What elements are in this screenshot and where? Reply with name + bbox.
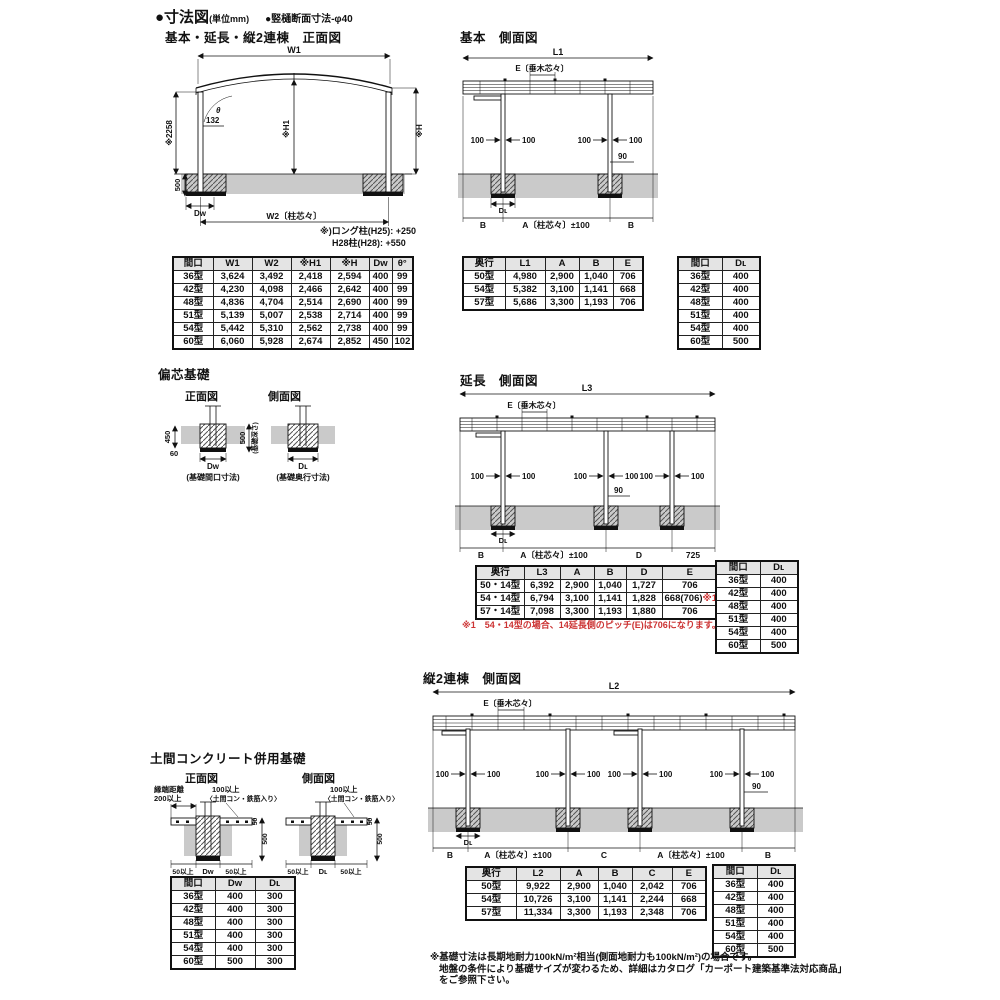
table-cell: 36型 [173,271,213,284]
dim-l3: L3 [460,383,715,394]
table-cell: 3,492 [252,271,291,284]
table-cell: 6,392 [524,580,560,593]
table-cell: 42型 [678,284,722,297]
table-row: 36型400 [713,879,795,892]
p100-label: 100 [522,136,536,145]
a-label: A〔柱芯々〕±100 [657,850,725,860]
dim-l1: L1 [463,47,653,58]
p100-label: 100 [536,770,550,779]
column-header: D [626,566,662,580]
long-column-note-line2: H28柱(H28): +550 [320,238,416,250]
column-header: L2 [516,867,560,881]
table-cell: 3,300 [560,907,598,921]
table-cell: 706 [662,606,718,620]
table-header-row: 間口Dʟ [678,257,760,271]
table-cell: 400 [760,575,798,588]
dimension-drawing-page: ●寸法図(単位mm)●竪樋断面寸法-φ40 基本・延長・縦2連棟 正面図 基本 … [0,0,1000,1000]
table-cell: 36型 [171,891,215,904]
table-cell: 51型 [713,918,757,931]
table-row: 51型5,1395,0072,5382,71440099 [173,310,413,323]
table-cell: 706 [613,271,643,284]
table-row: 42型400 [678,284,760,297]
dim-h: ※H [392,88,424,174]
table-cell: 36型 [713,879,757,892]
dl-label: Dʟ [298,462,308,471]
v725-label: 725 [686,550,700,560]
column-header: Dᴡ [369,257,392,271]
table-cell: 60型 [716,640,760,654]
table-cell: 2,594 [330,271,369,284]
table-cell: 2,642 [330,284,369,297]
dim-w2: W2〔柱芯々〕 [201,197,389,226]
table-header-row: 奥行L1ABE [463,257,643,271]
table-cell: 668(706)※1 [662,593,718,606]
column-header: ※H1 [291,257,330,271]
table-cell: 5,686 [505,297,545,311]
column-header: θ° [392,257,413,271]
min50-label: 50以上 [225,867,246,876]
table-cell: 400 [215,917,255,930]
page-unit: (単位mm) [209,14,249,24]
table-cell: 300 [255,904,295,917]
column-header: B [594,566,626,580]
p100-label: 100 [587,770,601,779]
p100-label: 100 [710,770,724,779]
table-row: 50型4,9802,9001,040706 [463,271,643,284]
table-cell: 60型 [171,956,215,970]
table-row: 36型400 [716,575,798,588]
dim-dw: Dᴡ [186,197,214,218]
table-cell: 5,007 [252,310,291,323]
page-title: ●寸法図 [155,9,209,26]
roof-panel [460,416,715,432]
table-row: 51型400300 [171,930,295,943]
p100-label: 100 [578,136,592,145]
v500-label: 500 [262,833,269,845]
table-cell: 668 [613,284,643,297]
v500-label: 500 [173,179,182,192]
column-header: 間口 [678,257,722,271]
table-cell: 2,042 [632,881,672,894]
dim-132: 132 [203,116,224,126]
table-header-row: 間口Dʟ [713,865,795,879]
column-header: A [545,257,579,271]
table-cell: 2,900 [560,580,594,593]
table-cell: 400 [757,879,795,892]
column-header: A [560,566,594,580]
a-label: A〔柱芯々〕±100 [522,220,590,230]
table-cell: 400 [757,931,795,944]
table-cell: 400 [369,284,392,297]
table-cell: 11,334 [516,907,560,921]
table-cell: 48型 [171,917,215,930]
table-cell: 400 [757,905,795,918]
column-header: C [632,867,672,881]
table-cell: 400 [369,271,392,284]
table-cell: 2,244 [632,894,672,907]
l3-label: L3 [582,383,593,393]
table-cell: 54型 [173,323,213,336]
column-header: B [598,867,632,881]
column-header: W2 [252,257,291,271]
table-cell: 50型 [466,881,516,894]
dim-90: 90 [744,782,768,792]
table-cell: 400 [722,323,760,336]
cap-front-label: (基礎間口寸法) [186,472,240,482]
table-cell: 400 [369,297,392,310]
table-row: 60型500 [678,336,760,350]
table-cell: 400 [757,918,795,931]
table-header-row: 奥行L3ABDE [476,566,718,580]
rento-dimension-table: 奥行L2ABCE50型9,9222,9001,0402,04270654型10,… [465,866,707,921]
table-cell: 706 [672,881,706,894]
w1-label: W1 [287,45,301,55]
table-cell: 2,466 [291,284,330,297]
table-cell: 42型 [713,892,757,905]
table-cell: 1,193 [579,297,613,311]
table-cell: 51型 [171,930,215,943]
foundation-footnote: ※基礎寸法は長期地耐力100kN/m²相当(側面地耐力も100kN/m²)の場合… [430,952,847,987]
henshin-front-view: 450 60 Dᴡ (基礎間口寸法) 500 (基礎深さ) [163,406,259,482]
cap-side-label: (基礎奥行寸法) [276,472,330,482]
e-label: E〔垂木芯々〕 [515,63,568,73]
h2258-label: ※2258 [164,120,174,146]
n90-label: 90 [752,782,761,791]
table-row: 42型400 [713,892,795,905]
p100-label: 100 [761,770,775,779]
table-cell: 1,193 [594,606,626,620]
p100-label: 100 [471,136,485,145]
table-cell: 36型 [678,271,722,284]
basic-side-view-diagram: L1 E〔垂木芯々〕 100 100 [450,44,665,249]
roof-panel [433,714,795,731]
p100-label: 100 [629,136,643,145]
table-cell: 1,828 [626,593,662,606]
dl-label: Dʟ [499,536,508,545]
table-cell: 3,624 [213,271,252,284]
p100-label: 100 [522,472,536,481]
table-cell: 4,704 [252,297,291,310]
table-row: 48型400300 [171,917,295,930]
table-cell: 400 [760,614,798,627]
foundation-left [186,174,226,196]
table-cell: 54型 [678,323,722,336]
column-header: ※H [330,257,369,271]
h1-label: ※H1 [281,119,291,138]
table-cell: 3,100 [560,894,598,907]
maguchi-dl-table-top: 間口Dʟ36型40042型40048型40051型40054型40060型500 [677,256,761,350]
table-cell: 3,300 [545,297,579,311]
table-row: 42型400300 [171,904,295,917]
column-header: 間口 [713,865,757,879]
v500-label: 500 [238,432,247,445]
table-cell: 706 [662,580,718,593]
v500-label: 500 [377,833,384,845]
table-cell: 54型 [463,284,505,297]
rento-side-view-diagram: L2 E〔垂木芯々〕 100 [418,680,813,860]
min50-label: 50以上 [287,867,308,876]
table-row: 48型400 [713,905,795,918]
a-label: A〔柱芯々〕±100 [520,550,588,560]
table-row: 48型400 [716,601,798,614]
table-cell: 400 [369,323,392,336]
v60-label: 60 [170,449,178,458]
table-row: 60型500 [716,640,798,654]
table-cell: 57型 [463,297,505,311]
table-cell: 6,060 [213,336,252,350]
table-cell: 42型 [173,284,213,297]
table-cell: 54・14型 [476,593,524,606]
e-label: E〔垂木芯々〕 [507,400,560,410]
dw-label: Dᴡ [202,867,213,876]
table-cell: 36型 [716,575,760,588]
table-row: 51型400 [678,310,760,323]
table-row: 54・14型6,7943,1001,1411,828668(706)※1 [476,593,718,606]
table-cell: 400 [215,891,255,904]
table-cell: 500 [722,336,760,350]
table-cell: 706 [672,907,706,921]
p100-label: 100 [608,770,622,779]
p100-label: 100 [691,472,705,481]
table-row: 54型400 [713,931,795,944]
table-cell: 42型 [716,588,760,601]
p100-label: 100 [487,770,501,779]
dim-l2: L2 [433,681,795,692]
table-cell: 51型 [173,310,213,323]
dw-label: Dᴡ [207,462,220,471]
table-row: 54型400 [678,323,760,336]
table-cell: 1,141 [598,894,632,907]
section-title-henshin: 偏芯基礎 [158,364,210,383]
table-row: 54型10,7263,1001,1412,244668 [466,894,706,907]
table-cell: 50型 [463,271,505,284]
table-row: 50型9,9222,9001,0402,042706 [466,881,706,894]
column-header: 奥行 [463,257,505,271]
table-cell: 2,538 [291,310,330,323]
table-row: 36型3,6243,4922,4182,59440099 [173,271,413,284]
edge2-label: 200以上 [154,793,182,803]
table-cell: 54型 [716,627,760,640]
n90-label: 90 [614,486,623,495]
maguchi-dl-table-bottom: 間口Dʟ36型40042型40048型40051型40054型40060型500 [712,864,796,958]
table-cell: 706 [613,297,643,311]
table-cell: 1,193 [598,907,632,921]
n90-label: 90 [618,152,627,161]
min100-label: 100以上 [330,784,358,794]
column-header: W1 [213,257,252,271]
table-row: 54型400300 [171,943,295,956]
table-cell: 102 [392,336,413,350]
table-cell: 3,100 [545,284,579,297]
extension-red-note: ※1 54・14型の場合、14延長側のピッチ(E)は706になります。 [462,620,721,632]
table-cell: 300 [255,891,295,904]
table-cell: 51型 [716,614,760,627]
table-cell: 400 [760,588,798,601]
p100-label: 100 [471,472,485,481]
table-cell: 300 [255,930,295,943]
min50-label: 50以上 [172,867,193,876]
p100-label: 100 [436,770,450,779]
table-cell: 57型 [466,907,516,921]
front-view-diagram: W1 ※2258 500 132 θ ※H1 ※H Dᴡ W2〔柱芯々〕 [158,44,453,249]
table-row: 36型400 [678,271,760,284]
column-header: L1 [505,257,545,271]
table-row: 51型400 [713,918,795,931]
table-cell: 4,980 [505,271,545,284]
table-header-row: 間口DᴡDʟ [171,877,295,891]
front-dimension-table: 間口W1W2※H1※HDᴡθ°36型3,6243,4922,4182,59440… [172,256,414,350]
v450-label: 450 [163,431,172,444]
p100-label: 100 [659,770,673,779]
table-header-row: 奥行L2ABCE [466,867,706,881]
table-cell: 2,418 [291,271,330,284]
table-cell: 300 [255,943,295,956]
column-header: 間口 [716,561,760,575]
dim-h1: ※H1 [281,80,294,174]
table-row: 51型400 [716,614,798,627]
b-label: B [478,550,484,560]
l1-label: L1 [553,47,564,57]
table-cell: 400 [215,904,255,917]
table-cell: 1,040 [594,580,626,593]
table-cell: 51型 [678,310,722,323]
column-header: E [672,867,706,881]
table-row: 57型11,3343,3001,1932,348706 [466,907,706,921]
table-cell: 60型 [678,336,722,350]
table-cell: 42型 [171,904,215,917]
column-header: 奥行 [476,566,524,580]
table-cell: 3,300 [560,606,594,620]
maguchi-dl-table-middle: 間口Dʟ36型40042型40048型40051型40054型40060型500 [715,560,799,654]
table-cell: 10,726 [516,894,560,907]
extension-side-view-diagram: L3 E〔垂木芯々〕 100 100 [450,382,725,562]
table-row: 42型4,2304,0982,4662,64240099 [173,284,413,297]
table-cell: 2,900 [545,271,579,284]
doma-foundation-diagram: 縁端距離 200以上 100以上 〈土間コン・鉄筋入り〉 50 500 50以上… [146,780,426,875]
w2-label: W2〔柱芯々〕 [266,211,321,221]
table-cell: 48型 [173,297,213,310]
table-row: 54型5,4425,3102,5622,73840099 [173,323,413,336]
rafter-pitch-e: E〔垂木芯々〕 [507,400,560,418]
dim-2258: ※2258 [164,92,198,174]
column-header: E [613,257,643,271]
ground [458,174,658,198]
table-cell: 99 [392,271,413,284]
table-header-row: 間口W1W2※H1※HDᴡθ° [173,257,413,271]
e-label: E〔垂木芯々〕 [483,698,536,708]
table-cell: 5,139 [213,310,252,323]
section-title-doma: 土間コンクリート併用基礎 [150,748,306,767]
column-header: Dᴡ [215,877,255,891]
p100-label: 100 [574,472,588,481]
table-cell: 99 [392,310,413,323]
table-row: 48型4,8364,7042,5142,69040099 [173,297,413,310]
table-cell: 1,040 [598,881,632,894]
table-cell: 400 [369,310,392,323]
table-cell: 400 [722,271,760,284]
table-cell: 1,141 [594,593,626,606]
table-cell: 99 [392,284,413,297]
table-cell: 2,514 [291,297,330,310]
c-label: C [601,850,607,860]
b-label: B [447,850,453,860]
table-cell: 2,690 [330,297,369,310]
b-label: B [480,220,486,230]
depth-label: (基礎深さ) [250,422,259,454]
p100-label: 100 [640,472,654,481]
table-cell: 99 [392,297,413,310]
table-cell: 1,880 [626,606,662,620]
table-row: 36型400300 [171,891,295,904]
table-row: 57型5,6863,3001,193706 [463,297,643,311]
v50-label: 50 [252,818,259,826]
table-cell: 6,794 [524,593,560,606]
table-row: 60型500300 [171,956,295,970]
page-header: ●寸法図(単位mm)●竪樋断面寸法-φ40 [155,6,353,27]
edge1-label: 縁端距離 [154,784,184,794]
dim-100-columns: 100 100 100 100 100 100 100 100 [436,770,775,779]
column-header: Dʟ [255,877,295,891]
table-cell: 2,852 [330,336,369,350]
column-header: 間口 [173,257,213,271]
dl-label: Dʟ [499,206,508,215]
dl-label: Dʟ [319,867,328,876]
b-label: B [765,850,771,860]
table-row: 42型400 [716,588,798,601]
table-row: 60型6,0605,9282,6742,852450102 [173,336,413,350]
table-cell: 400 [760,627,798,640]
extension-dimension-table: 奥行L3ABDE50・14型6,3922,9001,0401,72770654・… [475,565,719,620]
table-cell: 4,836 [213,297,252,310]
table-cell: 2,562 [291,323,330,336]
henshin-foundation-diagram: 450 60 Dᴡ (基礎間口寸法) 500 (基礎深さ) Dʟ (基礎奥行寸法… [153,396,353,491]
rafter-pitch-e: E〔垂木芯々〕 [515,63,568,81]
table-cell: 500 [760,640,798,654]
basic-side-dimension-table: 奥行L1ABE50型4,9802,9001,04070654型5,3823,10… [462,256,644,311]
table-cell: 54型 [171,943,215,956]
table-cell: 500 [215,956,255,970]
column-header: A [560,867,598,881]
column-header: Dʟ [722,257,760,271]
table-cell: 57・14型 [476,606,524,620]
dim-90: 90 [608,486,630,496]
dl-label: Dʟ [464,838,473,847]
table-cell: 5,928 [252,336,291,350]
p100-label: 100 [625,472,639,481]
table-cell: 60型 [173,336,213,350]
table-cell: 9,922 [516,881,560,894]
column-header: Dʟ [760,561,798,575]
table-cell: 400 [215,943,255,956]
min100-label: 100以上 [212,784,240,794]
table-cell: 50・14型 [476,580,524,593]
table-row: 57・14型7,0983,3001,1931,880706 [476,606,718,620]
bottom-dimension-line: B A〔柱芯々〕±100 B [463,96,653,230]
footnote-line1: ※基礎寸法は長期地耐力100kN/m²相当(側面地耐力も100kN/m²)の場合… [430,952,847,964]
table-cell: 5,382 [505,284,545,297]
table-cell: 2,674 [291,336,330,350]
table-cell: 2,714 [330,310,369,323]
rebar-label: 〈土間コン・鉄筋入り〉 [324,794,399,803]
table-cell: 5,310 [252,323,291,336]
b-label: B [628,220,634,230]
table-cell: 400 [722,310,760,323]
table-cell: 668 [672,894,706,907]
table-row: 54型5,3823,1001,141668 [463,284,643,297]
henshin-side-view: Dʟ (基礎奥行寸法) [271,406,335,482]
table-cell: 48型 [713,905,757,918]
table-row: 50・14型6,3922,9001,0401,727706 [476,580,718,593]
